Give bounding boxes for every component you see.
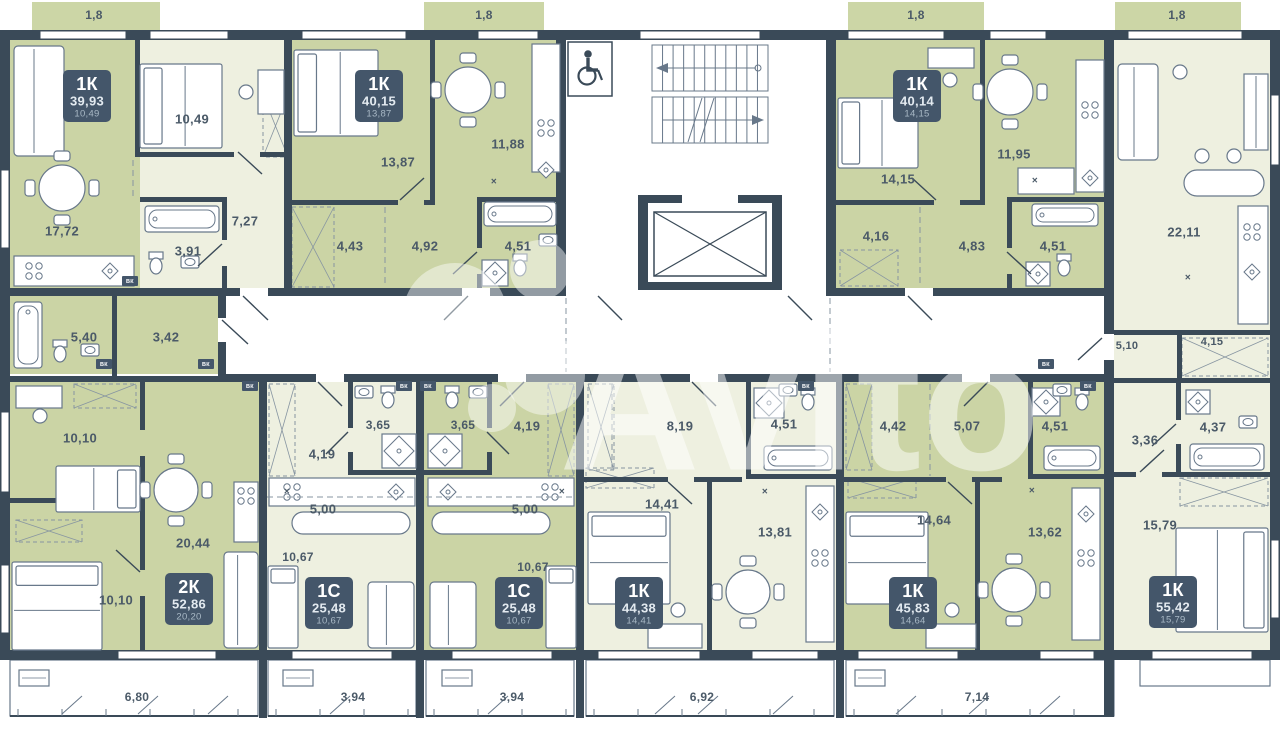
room — [1032, 4, 1082, 28]
window — [1040, 651, 1094, 659]
area-label: 5,07 — [954, 418, 981, 433]
apartment-badge-area: 25,48 — [312, 600, 346, 615]
area-label: 1,8 — [1168, 8, 1186, 22]
window — [1128, 31, 1242, 39]
apartment-badge-sub: 14,15 — [904, 109, 929, 120]
table-icon — [987, 69, 1033, 115]
wall — [1007, 197, 1012, 288]
area-label: 4,83 — [959, 238, 986, 253]
wall — [1007, 197, 1104, 202]
area-label: 4,19 — [514, 418, 541, 433]
kitchen-mark: × — [1029, 486, 1035, 497]
table-icon — [726, 570, 770, 614]
floor-plan-svg: AvitoВКВКВКВКВКВКВКВКВК17,7210,493,917,2… — [0, 0, 1280, 740]
area-label: 13,81 — [758, 524, 792, 539]
apartment-badge-sub: 20,20 — [176, 612, 201, 623]
desk-icon — [928, 48, 974, 68]
kitchen-mark: × — [559, 487, 565, 498]
bed-pillow — [1244, 532, 1264, 628]
kitchen-mark: × — [762, 487, 768, 498]
chair-icon — [460, 117, 476, 127]
chair-icon — [33, 409, 47, 423]
wall — [140, 197, 227, 202]
chair-icon — [1002, 119, 1018, 129]
area-label: 3,36 — [1132, 432, 1159, 447]
apartment-badge-sub: 14,64 — [900, 616, 925, 627]
apartment-badge-type: 2К — [178, 577, 200, 597]
room — [1114, 383, 1176, 472]
apartment-badge-sub: 15,79 — [1160, 615, 1185, 626]
chair-icon — [168, 516, 184, 526]
area-label: 4,51 — [505, 238, 532, 253]
chair-icon — [973, 84, 983, 100]
wall — [135, 152, 288, 157]
chair-icon — [774, 584, 784, 600]
bed-pillow — [842, 102, 860, 164]
area-label: 10,10 — [99, 592, 133, 607]
area-label: 4,92 — [412, 238, 439, 253]
area-label: 8,19 — [667, 418, 694, 433]
chair-icon — [460, 53, 476, 63]
room — [360, 6, 406, 30]
apartment-badge-sub: 10,49 — [74, 109, 99, 120]
bed-pillow — [16, 566, 98, 585]
bathtub-icon — [1048, 450, 1096, 466]
stool-icon — [1227, 149, 1241, 163]
window — [752, 651, 818, 659]
bed-pillow — [298, 54, 316, 132]
bed-pillow — [549, 569, 573, 583]
bed-pillow — [592, 516, 666, 536]
wall — [135, 40, 140, 157]
door-gap — [140, 570, 145, 596]
table-icon — [445, 67, 491, 113]
chair-icon — [943, 73, 957, 87]
vent-box: ВК — [802, 384, 810, 390]
vent-box: ВК — [100, 362, 108, 368]
chair-icon — [945, 603, 959, 617]
sofa-icon — [14, 46, 64, 156]
wall — [826, 30, 836, 296]
bathtub-icon — [18, 306, 38, 364]
apartment-badge-type: 1К — [368, 74, 390, 94]
window — [1152, 651, 1252, 659]
apartment-badge-area: 52,86 — [172, 596, 206, 611]
bathtub-icon — [1036, 208, 1094, 222]
area-label: 6,80 — [125, 690, 150, 704]
apartment-badge-type: 1К — [1162, 580, 1184, 600]
desk-icon — [16, 386, 62, 408]
window — [1271, 95, 1279, 165]
window — [150, 31, 228, 39]
area-label: 5,40 — [71, 329, 98, 344]
apartment-badge-type: 1К — [76, 74, 98, 94]
apartment-badge-area: 55,42 — [1156, 599, 1190, 614]
room — [208, 4, 260, 30]
apartment-badge-type: 1К — [906, 74, 928, 94]
window — [452, 651, 552, 659]
area-label: 3,94 — [341, 690, 366, 704]
window — [292, 651, 392, 659]
door-gap — [140, 430, 145, 456]
area-label: 14,64 — [917, 512, 952, 527]
wall — [772, 195, 782, 290]
window — [598, 651, 700, 659]
wall — [638, 195, 682, 203]
bathtub-icon — [488, 206, 552, 222]
area-label: 1,8 — [475, 8, 493, 22]
area-label: 14,15 — [881, 171, 915, 186]
toilet-icon — [150, 258, 162, 274]
wall — [738, 195, 782, 203]
bathtub-icon — [1194, 448, 1260, 466]
chair-icon — [89, 180, 99, 196]
chair-icon — [978, 582, 988, 598]
wall — [259, 374, 267, 718]
room — [836, 205, 920, 288]
area-label: 4,19 — [309, 446, 336, 461]
chair-icon — [495, 82, 505, 98]
door-gap — [1104, 334, 1114, 360]
chair-icon — [54, 151, 70, 161]
area-label: 7,14 — [965, 690, 990, 704]
toilet-icon — [1076, 394, 1088, 410]
bed-pillow — [144, 68, 162, 144]
apartment-badge-sub: 13,87 — [366, 109, 391, 120]
vent-box: ВК — [202, 362, 210, 368]
area-label: 13,87 — [381, 154, 415, 169]
wall — [10, 376, 218, 382]
area-label: 1,8 — [85, 8, 103, 22]
sofa-icon — [368, 582, 414, 648]
bed-pillow — [850, 516, 924, 536]
door-gap — [218, 318, 226, 342]
room — [586, 660, 834, 716]
vent-box: ВК — [246, 384, 254, 390]
area-label: 6,92 — [690, 690, 715, 704]
vent-box: ВК — [400, 384, 408, 390]
toilet-icon — [446, 392, 458, 408]
apartment-badge-area: 45,83 — [896, 600, 930, 615]
apartment-badge-type: 1К — [628, 581, 650, 601]
apartment-badge-type: 1С — [317, 581, 341, 601]
area-label: 3,91 — [175, 243, 202, 258]
wall — [1177, 335, 1182, 383]
sofa-icon — [430, 582, 476, 648]
stool-icon — [1173, 65, 1187, 79]
sink-icon — [1053, 384, 1071, 396]
shower-icon — [1186, 390, 1210, 414]
apartment-badge-area: 40,15 — [362, 93, 396, 108]
wall — [980, 40, 985, 205]
wall — [112, 296, 117, 376]
toilet-icon — [54, 346, 66, 362]
sofa-icon — [1118, 64, 1158, 160]
apartment-badge-area: 40,14 — [900, 93, 935, 108]
sink-icon — [1239, 416, 1257, 428]
door-gap — [316, 374, 344, 382]
kitchen-mark: × — [1185, 273, 1191, 284]
kitchen-counter — [532, 44, 560, 172]
room — [268, 660, 416, 716]
area-label: 4,51 — [1040, 238, 1067, 253]
window — [1, 170, 9, 248]
shower-icon — [1026, 262, 1050, 286]
door-gap — [1176, 420, 1181, 444]
chair-icon — [140, 482, 150, 498]
wall — [477, 197, 560, 202]
apartment-badge-area: 25,48 — [502, 600, 536, 615]
area-label: 10,49 — [175, 111, 209, 126]
window — [1, 565, 9, 633]
apartment-badge-type: 1С — [507, 581, 531, 601]
area-label: 4,42 — [880, 418, 907, 433]
area-label: 3,65 — [366, 418, 391, 432]
shower-icon — [382, 434, 416, 468]
vent-box: ВК — [424, 384, 432, 390]
chair-icon — [740, 618, 756, 628]
wall — [424, 470, 492, 475]
area-label: 4,51 — [1042, 418, 1069, 433]
area-label: 13,62 — [1028, 524, 1062, 539]
room — [426, 660, 574, 716]
door-gap — [222, 240, 227, 266]
apartment-badge-sub: 14,41 — [626, 616, 651, 627]
window — [118, 651, 216, 659]
door-gap — [348, 428, 353, 452]
sink-icon — [355, 386, 373, 398]
apartment-badge-area: 39,93 — [70, 93, 104, 108]
area-label: 4,15 — [1201, 336, 1224, 348]
chair-icon — [431, 82, 441, 98]
wall — [836, 200, 985, 205]
apartment-badge-sub: 10,67 — [506, 616, 531, 627]
area-label: 4,43 — [337, 238, 364, 253]
door-gap — [934, 200, 960, 205]
wall — [1114, 378, 1270, 383]
window — [640, 31, 760, 39]
window — [40, 31, 126, 39]
watermark: Avito — [559, 294, 1041, 512]
area-label: 7,27 — [232, 213, 259, 228]
sofa-icon — [224, 552, 258, 648]
table-icon — [154, 468, 198, 512]
chair-icon — [671, 603, 685, 617]
area-label: 10,10 — [63, 430, 97, 445]
desk-icon — [258, 70, 284, 114]
vent-box: ВК — [1084, 384, 1092, 390]
area-label: 20,44 — [176, 535, 211, 550]
chair-icon — [202, 482, 212, 498]
apartment-badge-sub: 10,67 — [316, 616, 341, 627]
kitchen-mark: × — [491, 177, 497, 188]
door-gap — [1136, 472, 1162, 477]
room — [10, 660, 258, 716]
watermark — [403, 263, 507, 367]
stool-icon — [1195, 149, 1209, 163]
area-label: 4,16 — [863, 228, 890, 243]
table-icon — [39, 165, 85, 211]
sink-icon — [81, 344, 99, 356]
chair-icon — [168, 454, 184, 464]
door-gap — [398, 200, 424, 205]
apartment-badge-area: 44,38 — [622, 600, 656, 615]
room — [636, 2, 768, 30]
area-label: 17,72 — [45, 223, 79, 238]
toilet-icon — [1058, 260, 1070, 276]
kitchen-counter — [1018, 168, 1074, 194]
area-label: 15,79 — [1143, 517, 1177, 532]
door-gap — [240, 288, 268, 296]
area-label: 10,67 — [282, 550, 314, 564]
window — [1, 412, 9, 492]
bar-table-icon — [1184, 170, 1264, 196]
area-label: 4,51 — [771, 416, 798, 431]
chair-icon — [1006, 616, 1022, 626]
bathtub-icon — [149, 210, 215, 228]
chair-icon — [740, 556, 756, 566]
wall — [1104, 660, 1114, 716]
shower-icon — [428, 434, 462, 468]
wall — [284, 30, 292, 296]
kitchen-mark: × — [284, 487, 290, 498]
area-label: 11,88 — [491, 136, 524, 151]
wall — [638, 282, 782, 290]
area-label: 22,11 — [1167, 224, 1200, 239]
area-label: 5,00 — [512, 501, 539, 516]
window — [478, 31, 538, 39]
floor-plan: AvitoВКВКВКВКВКВКВКВКВК17,7210,493,917,2… — [0, 0, 1280, 740]
area-label: 3,42 — [153, 329, 180, 344]
area-label: 11,95 — [997, 146, 1030, 161]
bed-pillow — [271, 569, 295, 583]
area-label: 14,41 — [645, 496, 679, 511]
window — [302, 31, 406, 39]
window — [990, 31, 1046, 39]
window — [848, 31, 944, 39]
vent-box: ВК — [126, 279, 134, 285]
toilet-icon — [382, 392, 394, 408]
area-label: 3,65 — [451, 418, 476, 432]
chair-icon — [1040, 582, 1050, 598]
wall — [1114, 330, 1270, 335]
area-label: 10,67 — [517, 560, 549, 574]
chair-icon — [1006, 554, 1022, 564]
wall — [416, 374, 424, 718]
bed-pillow — [118, 470, 136, 508]
chair-icon — [1002, 55, 1018, 65]
window — [1271, 540, 1279, 618]
wall — [348, 470, 418, 475]
apartment-badge-type: 1К — [902, 581, 924, 601]
chair-icon — [25, 180, 35, 196]
kitchen-mark: × — [1032, 176, 1038, 187]
chair-icon — [1037, 84, 1047, 100]
area-label: 5,10 — [1116, 340, 1139, 352]
area-label: 1,8 — [907, 8, 925, 22]
area-label: 5,00 — [310, 501, 337, 516]
vent-box: ВК — [1042, 362, 1050, 368]
table-icon — [992, 568, 1036, 612]
room — [846, 660, 1114, 716]
wheelchair-icon — [584, 50, 592, 58]
wall — [430, 40, 435, 205]
window — [858, 651, 958, 659]
chair-icon — [239, 85, 253, 99]
area-label: 4,37 — [1200, 419, 1227, 434]
chair-icon — [712, 584, 722, 600]
wall — [638, 195, 648, 290]
area-label: 3,94 — [500, 690, 525, 704]
